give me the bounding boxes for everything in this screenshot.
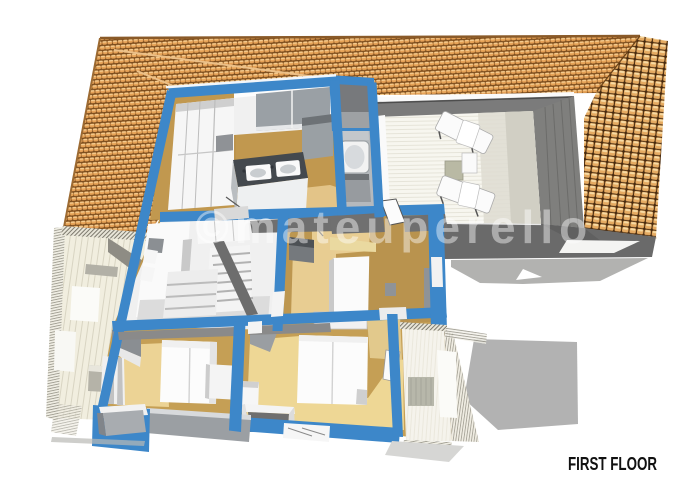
svg-text:©mateuperello: ©mateuperello: [195, 201, 593, 253]
svg-text:FIRST FLOOR: FIRST FLOOR: [568, 454, 657, 474]
